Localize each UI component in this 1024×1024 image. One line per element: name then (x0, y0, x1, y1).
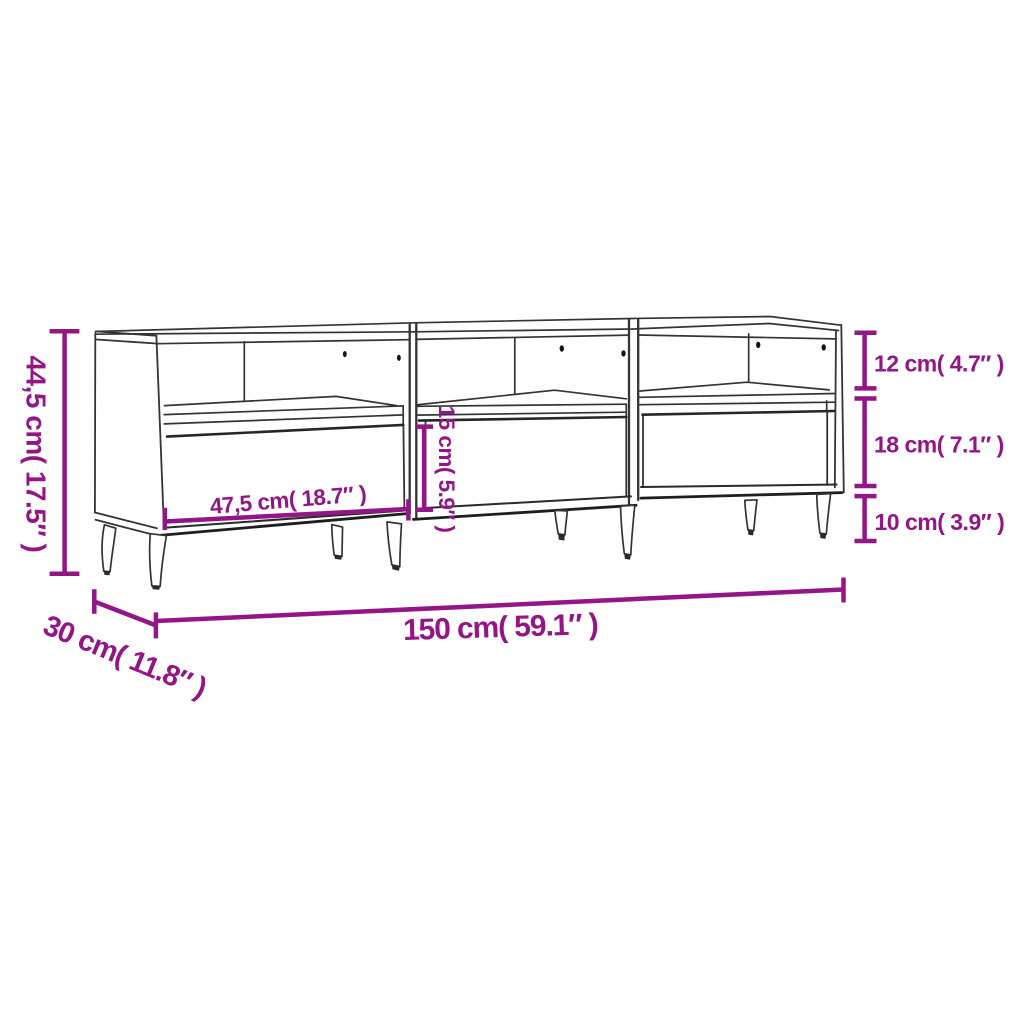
svg-text:15 cm( 5.9″ ): 15 cm( 5.9″ ) (434, 406, 459, 533)
svg-text:12 cm( 4.7″ ): 12 cm( 4.7″ ) (874, 350, 1004, 376)
svg-text:150 cm( 59.1″ ): 150 cm( 59.1″ ) (402, 608, 598, 647)
svg-text:18 cm( 7.1″ ): 18 cm( 7.1″ ) (874, 431, 1004, 457)
svg-text:10 cm( 3.9″ ): 10 cm( 3.9″ ) (875, 509, 1005, 535)
svg-text:44,5 cm( 17.5″ ): 44,5 cm( 17.5″ ) (21, 355, 52, 552)
